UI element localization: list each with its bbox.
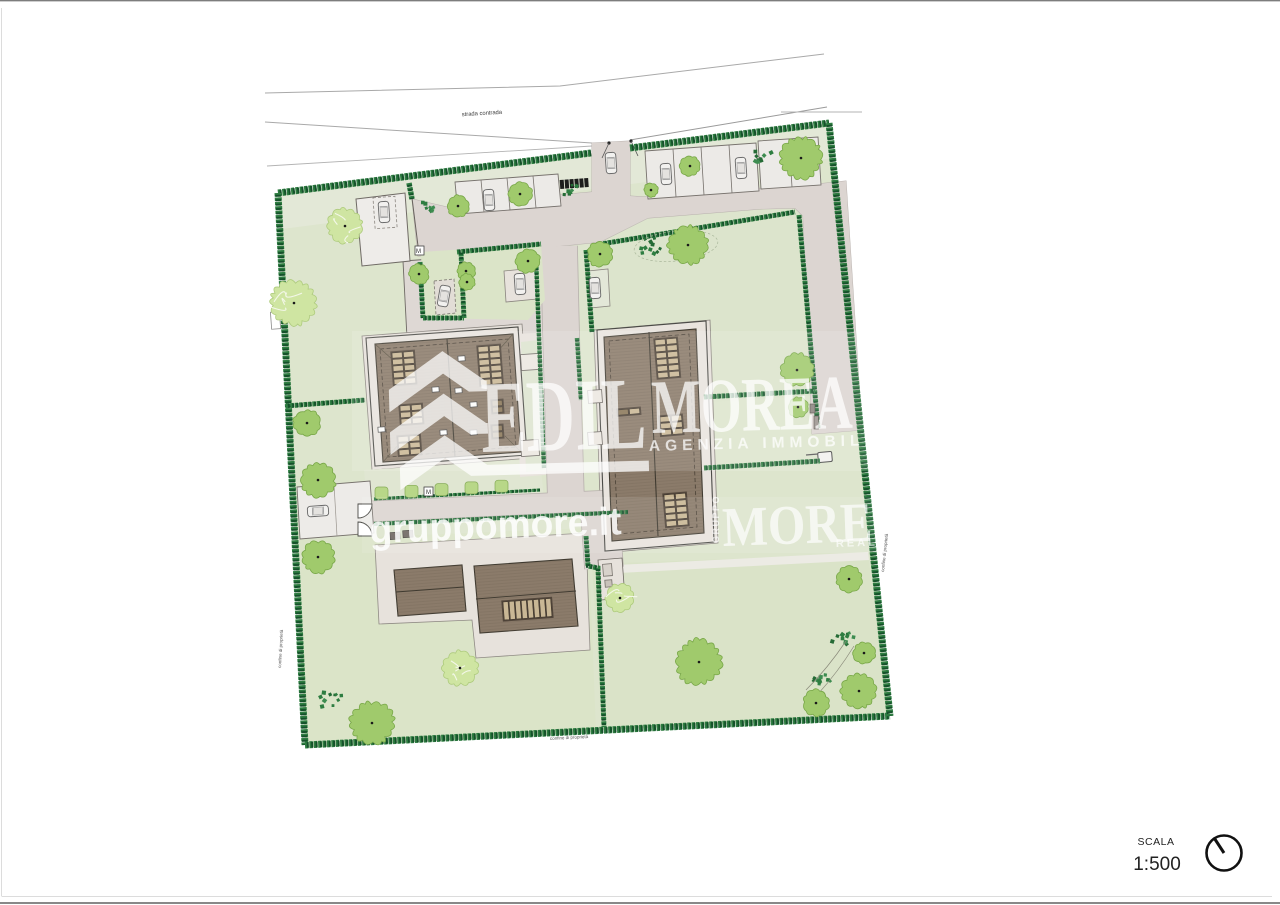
svg-text:1:500: 1:500 <box>1133 854 1181 875</box>
svg-text:SCALA: SCALA <box>1138 836 1175 848</box>
svg-text:gruppomore.it: gruppomore.it <box>369 500 622 552</box>
svg-text:M: M <box>416 249 421 255</box>
svg-text:M: M <box>426 490 431 496</box>
svg-text:EDIL: EDIL <box>480 357 648 475</box>
svg-text:GRUPPO: GRUPPO <box>711 495 721 543</box>
svg-text:REAL: REAL <box>836 537 878 550</box>
